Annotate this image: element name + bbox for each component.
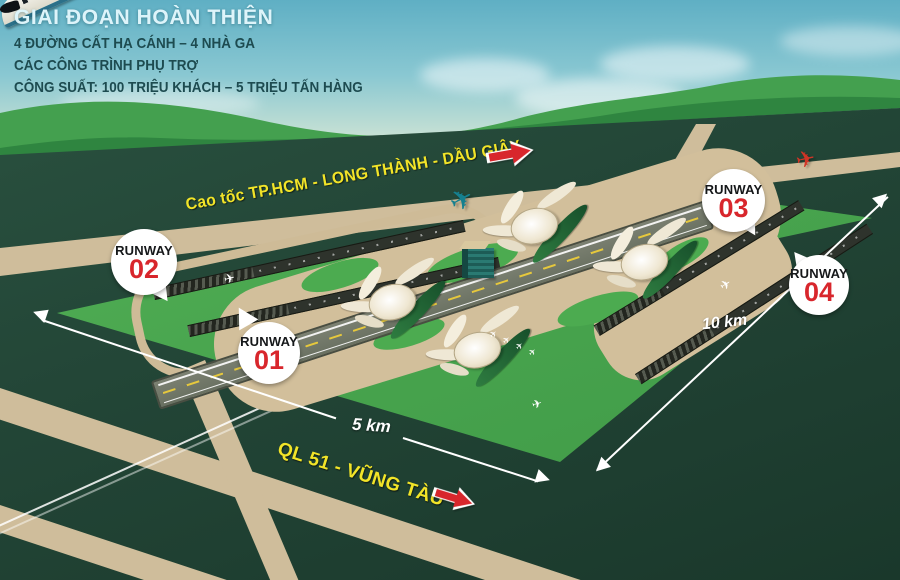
runway-01-bubble: RUNWAY 01 xyxy=(238,322,300,384)
runway-02-bubble: RUNWAY 02 xyxy=(111,229,177,295)
runway-number: 01 xyxy=(254,349,284,372)
header-subline: 4 ĐƯỜNG CẤT HẠ CÁNH – 4 NHÀ GA xyxy=(14,35,363,52)
infographic-long-thanh-airport: ✈ ✈ ✈ ✈ ✈ ✈ ✈ ✈ ✈ 5 km 10 km Cao tốc TP.… xyxy=(0,0,900,580)
runway-04-bubble: RUNWAY 04 xyxy=(789,255,849,315)
runway-number: 04 xyxy=(804,281,834,304)
page-title: GIAI ĐOẠN HOÀN THIỆN xyxy=(14,6,402,30)
runway-03-bubble: RUNWAY 03 xyxy=(702,169,765,232)
header-subline: CÁC CÔNG TRÌNH PHỤ TRỢ xyxy=(14,57,363,74)
runway-number: 02 xyxy=(129,258,159,281)
runway-number: 03 xyxy=(718,197,748,220)
header-subline: CÔNG SUẤT: 100 TRIỆU KHÁCH – 5 TRIỆU TẤN… xyxy=(14,79,363,96)
header: GIAI ĐOẠN HOÀN THIỆN 4 ĐƯỜNG CẤT HẠ CÁNH… xyxy=(14,6,402,96)
dimension-label-5km: 5 km xyxy=(351,415,391,438)
